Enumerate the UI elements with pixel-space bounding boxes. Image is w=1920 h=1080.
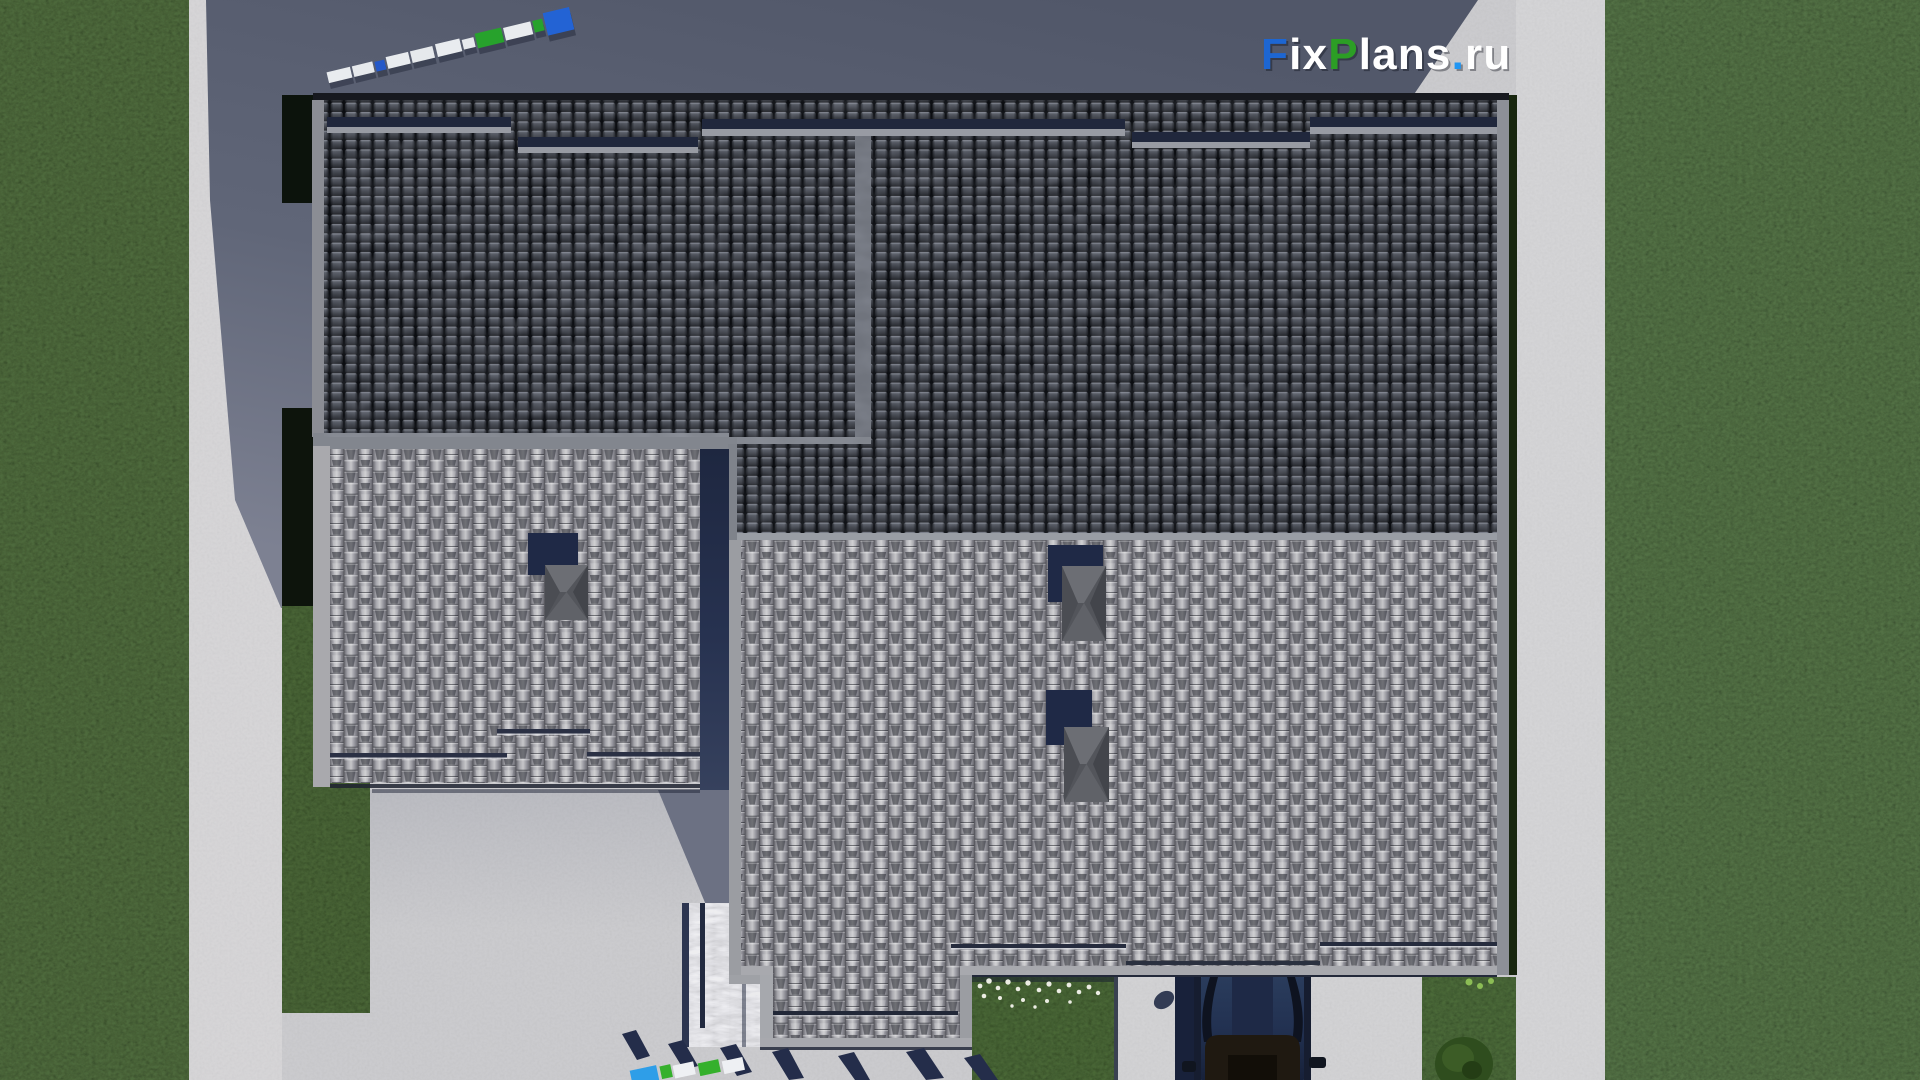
svg-text:FixPlans.ru: FixPlans.ru (1261, 30, 1511, 79)
